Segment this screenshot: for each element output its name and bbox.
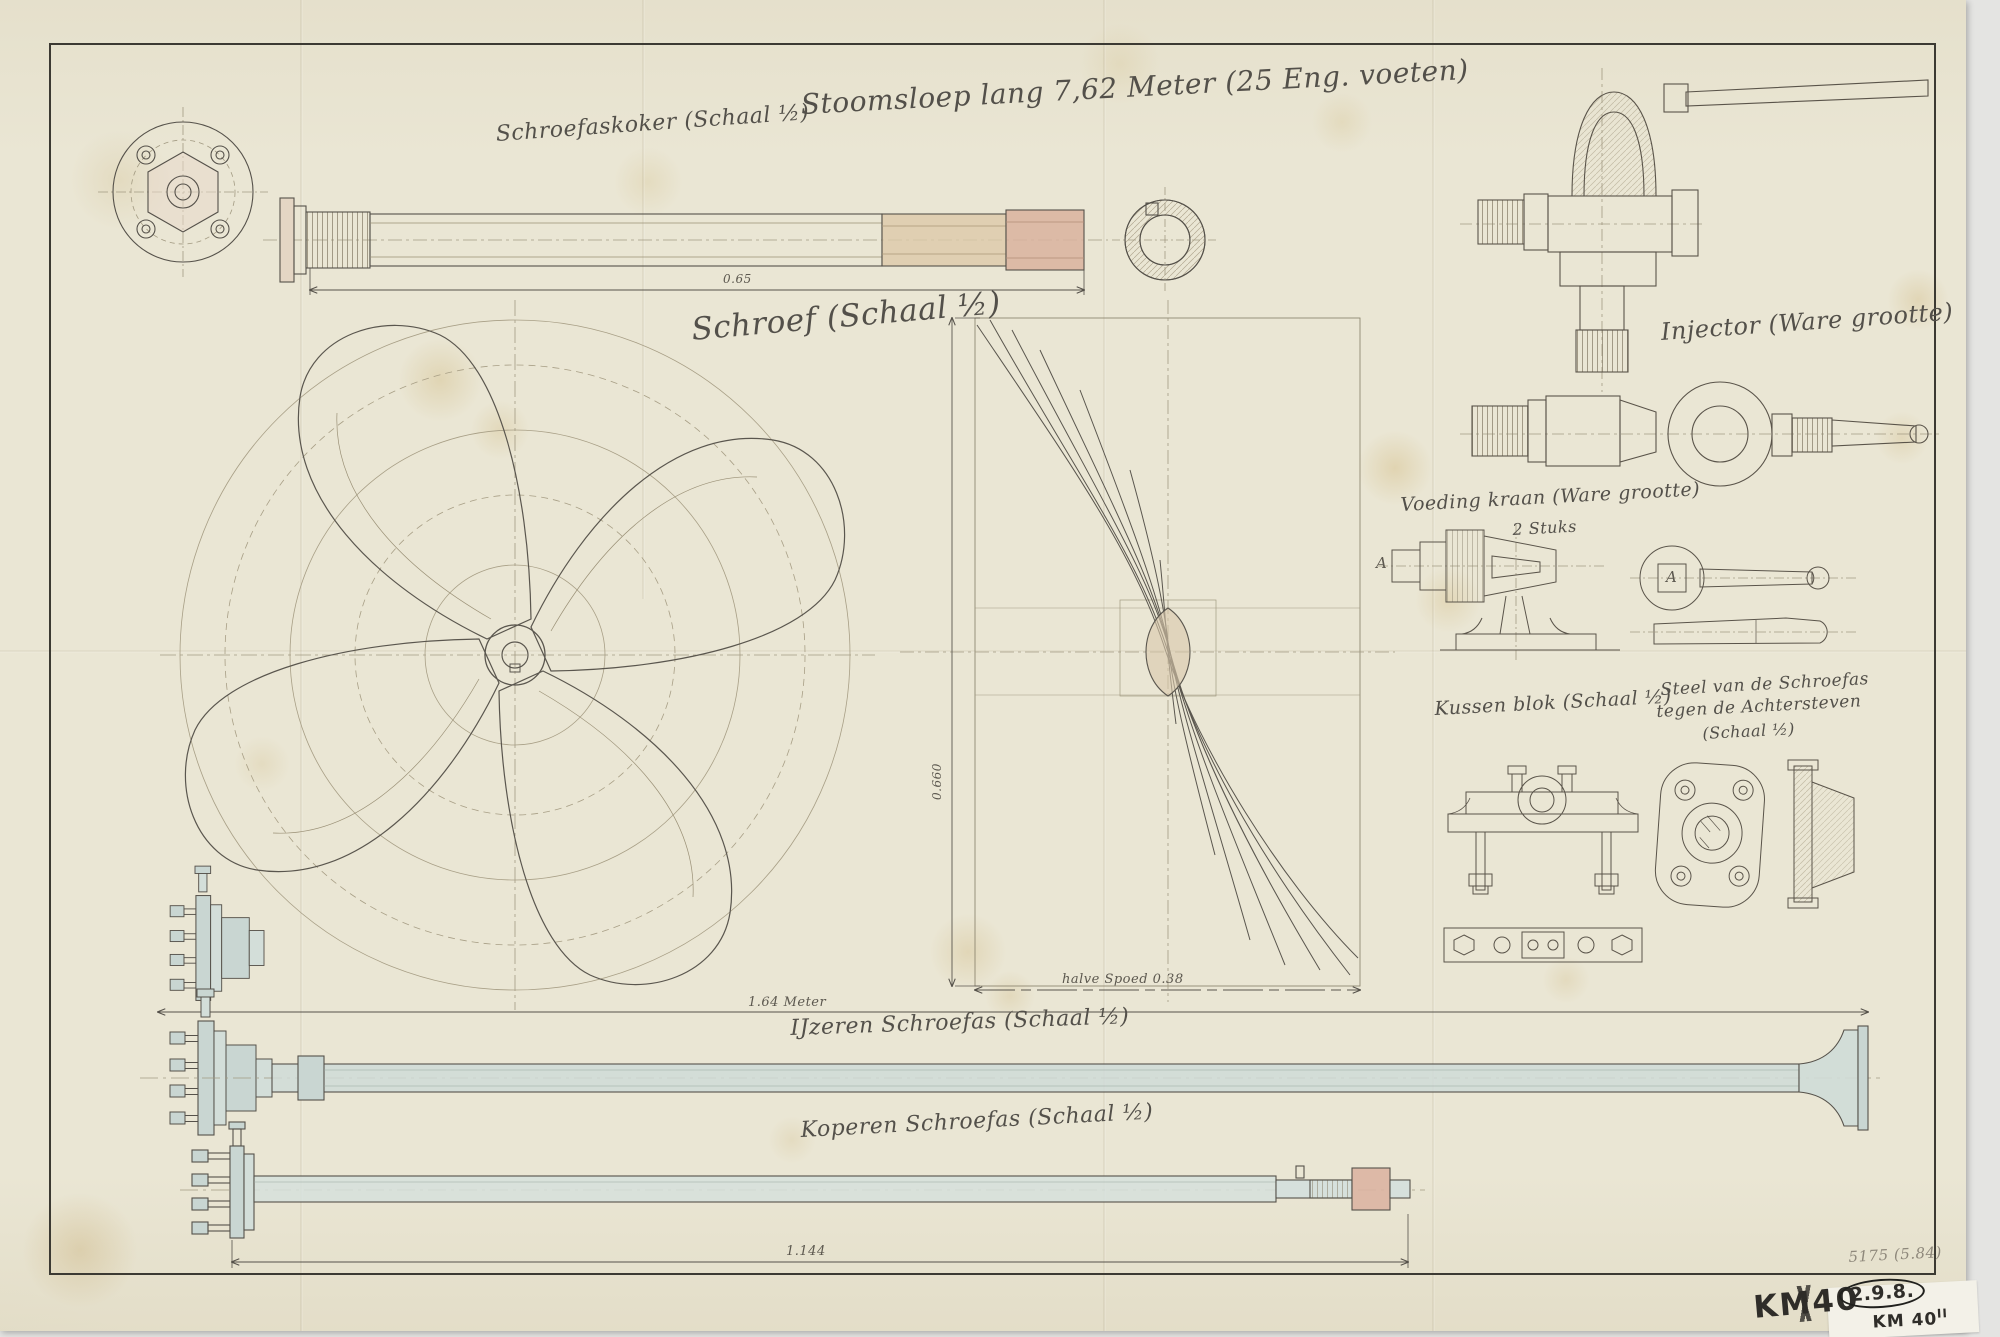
bearing-block-drawing	[1444, 766, 1642, 962]
sticker-reference: KM 40II	[1872, 1306, 1949, 1333]
technical-drawing-canvas	[0, 0, 2000, 1337]
shaft-tube-ring-section	[1112, 187, 1218, 293]
injector-drawing	[1460, 68, 1940, 486]
dim-koperen-length: 1.144	[786, 1244, 826, 1259]
shaft-tube-side-view	[263, 198, 1108, 295]
dim-halve-spoed: halve Spoed 0.38	[1062, 972, 1184, 987]
iron-shaft-drawing	[140, 866, 1880, 1135]
marker-a-handle: A	[1666, 568, 1677, 586]
sticker-reference-sup: II	[1937, 1306, 1949, 1321]
sticker-reference-text: KM 40	[1872, 1309, 1938, 1332]
hub-end-view	[98, 107, 268, 277]
stern-bracket-drawing	[1653, 760, 1854, 909]
feed-cock-section	[1378, 524, 1620, 662]
dim-koker-length: 0.65	[723, 272, 752, 286]
dim-ijzeren-length: 1.64 Meter	[748, 995, 826, 1010]
scan-background: Stoomsloep lang 7,62 Meter (25 Eng. voet…	[0, 0, 2000, 1337]
drawing-sheet: Stoomsloep lang 7,62 Meter (25 Eng. voet…	[0, 0, 1966, 1331]
dim-schroef-diameter: 0.660	[930, 763, 944, 800]
marker-a-section: A	[1376, 554, 1387, 572]
propeller-pitch-projection	[900, 300, 1395, 1002]
label-voeding-kraan-qty: 2 Stuks	[1512, 517, 1577, 539]
feed-cock-handle	[1630, 546, 1856, 644]
propeller-front-view	[160, 300, 875, 1010]
